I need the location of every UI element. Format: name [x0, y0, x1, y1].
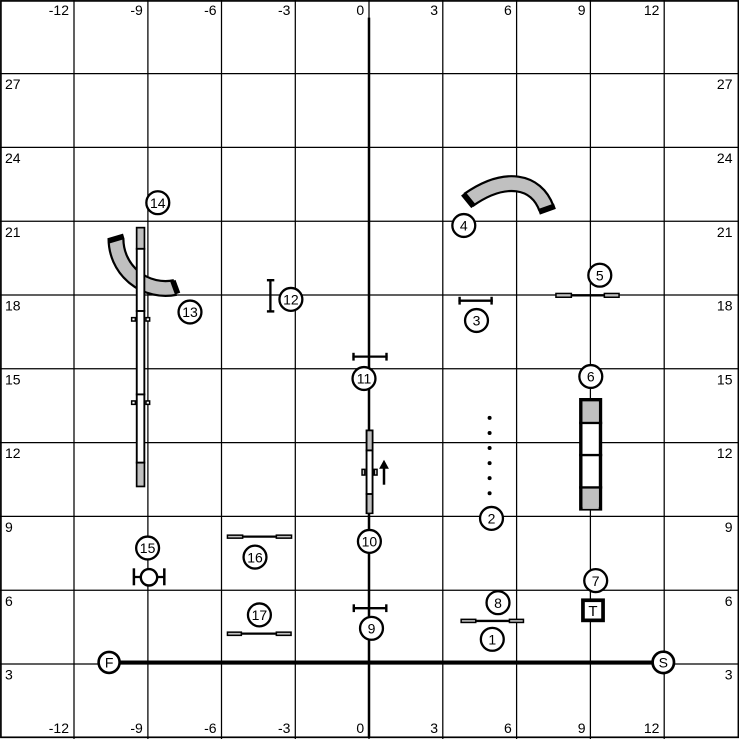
svg-text:3: 3 [430, 2, 438, 18]
svg-text:2: 2 [488, 511, 496, 527]
svg-text:15: 15 [717, 371, 733, 387]
svg-text:5: 5 [596, 267, 604, 283]
svg-text:0: 0 [356, 2, 364, 18]
svg-text:3: 3 [725, 667, 733, 683]
svg-text:11: 11 [357, 371, 372, 387]
svg-text:14: 14 [150, 195, 166, 211]
svg-text:6: 6 [725, 593, 733, 609]
svg-text:-12: -12 [49, 720, 69, 736]
svg-text:12: 12 [283, 292, 299, 308]
svg-text:0: 0 [356, 720, 364, 736]
svg-text:3: 3 [473, 313, 481, 329]
svg-text:-9: -9 [130, 720, 143, 736]
svg-text:15: 15 [5, 371, 21, 387]
svg-text:-6: -6 [204, 2, 217, 18]
svg-text:18: 18 [717, 298, 733, 314]
svg-text:3: 3 [430, 720, 438, 736]
svg-text:T: T [588, 603, 597, 620]
svg-text:12: 12 [5, 445, 21, 461]
svg-text:15: 15 [140, 540, 156, 556]
svg-text:9: 9 [578, 2, 586, 18]
svg-text:1: 1 [488, 632, 496, 648]
svg-text:10: 10 [362, 534, 378, 550]
svg-text:6: 6 [587, 369, 595, 385]
svg-text:13: 13 [182, 304, 198, 320]
svg-text:27: 27 [5, 76, 21, 92]
svg-text:-9: -9 [130, 2, 143, 18]
svg-text:16: 16 [247, 549, 263, 565]
svg-text:12: 12 [717, 445, 733, 461]
svg-text:-3: -3 [278, 2, 291, 18]
svg-text:6: 6 [504, 720, 512, 736]
svg-text:8: 8 [494, 595, 502, 611]
svg-text:12: 12 [644, 2, 660, 18]
svg-text:3: 3 [5, 667, 13, 683]
svg-text:S: S [659, 655, 668, 671]
svg-text:21: 21 [5, 224, 21, 240]
svg-text:-12: -12 [49, 2, 69, 18]
svg-text:9: 9 [5, 519, 13, 535]
svg-text:7: 7 [592, 573, 600, 589]
svg-text:9: 9 [578, 720, 586, 736]
svg-text:4: 4 [460, 218, 468, 234]
svg-text:21: 21 [717, 224, 733, 240]
svg-text:-6: -6 [204, 720, 217, 736]
svg-text:24: 24 [717, 150, 733, 166]
svg-text:F: F [105, 655, 114, 671]
svg-text:6: 6 [504, 2, 512, 18]
svg-text:24: 24 [5, 150, 21, 166]
svg-text:9: 9 [725, 519, 733, 535]
svg-text:12: 12 [644, 720, 660, 736]
svg-text:18: 18 [5, 298, 21, 314]
svg-text:6: 6 [5, 593, 13, 609]
svg-text:27: 27 [717, 76, 733, 92]
svg-text:-3: -3 [278, 720, 291, 736]
svg-text:9: 9 [368, 621, 376, 637]
svg-text:17: 17 [252, 607, 268, 623]
